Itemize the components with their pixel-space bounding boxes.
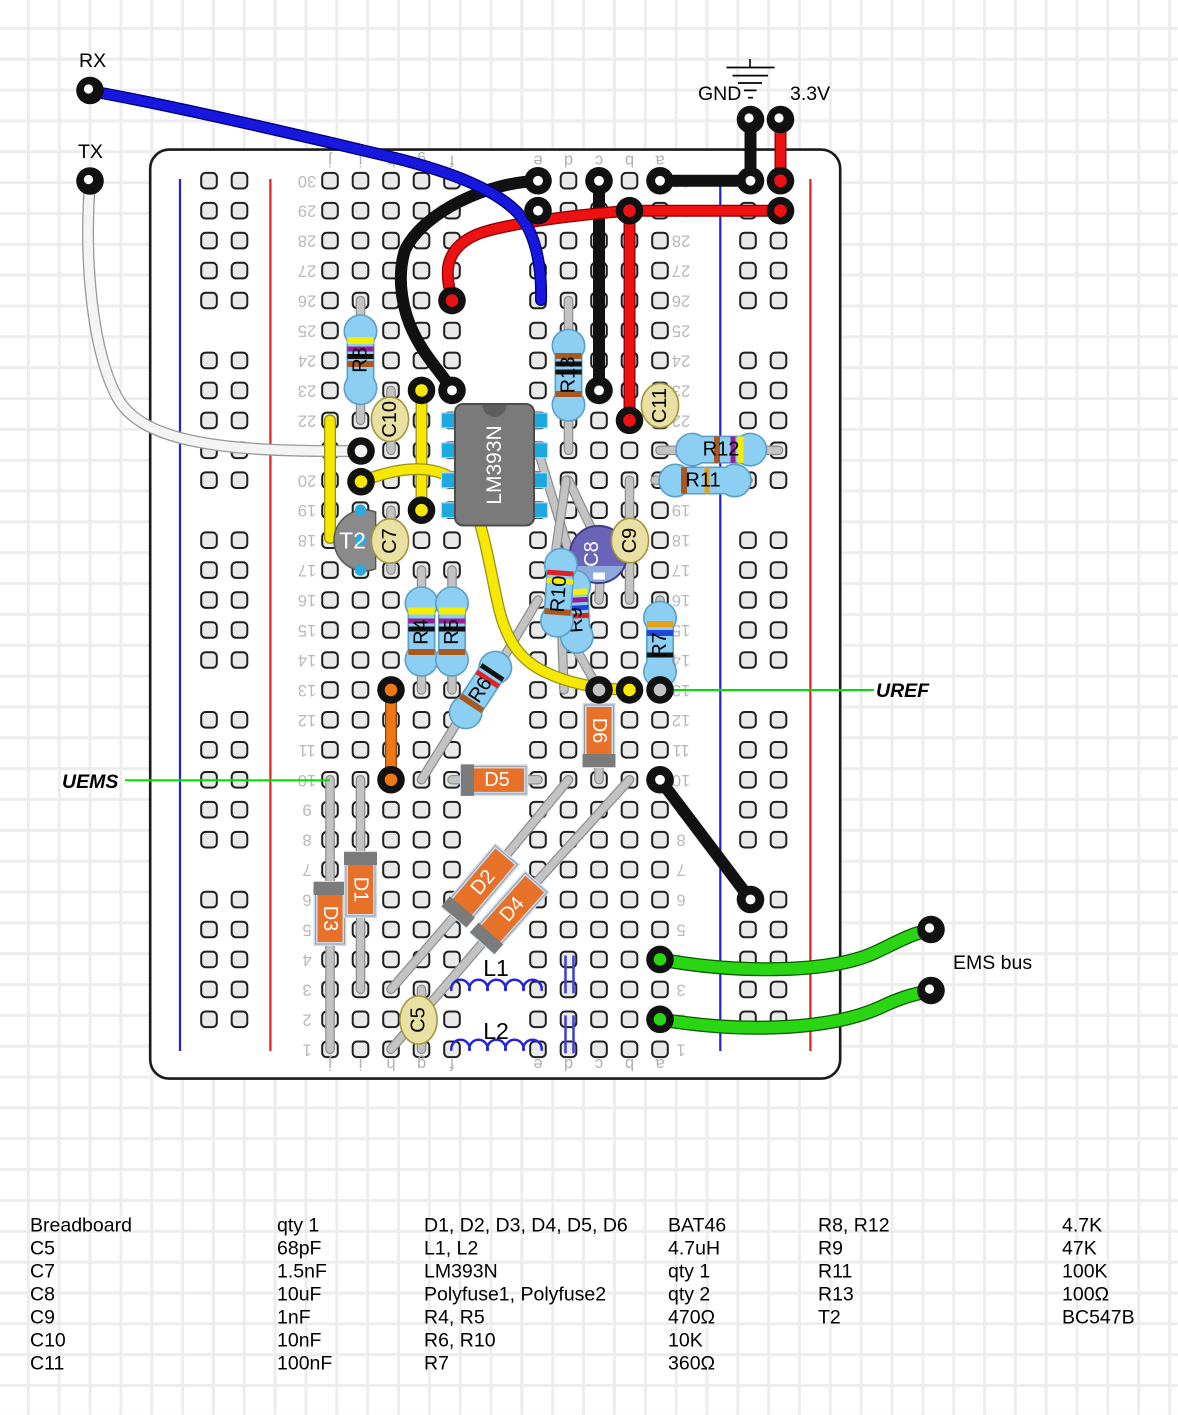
svg-text:LM393N: LM393N — [483, 425, 506, 504]
svg-text:360Ω: 360Ω — [668, 1353, 715, 1375]
svg-text:R12: R12 — [703, 439, 740, 461]
svg-text:D3: D3 — [319, 906, 341, 932]
svg-text:12: 12 — [672, 711, 690, 729]
svg-text:a: a — [655, 1055, 665, 1073]
svg-text:24: 24 — [298, 351, 316, 369]
svg-text:29: 29 — [298, 202, 316, 220]
svg-text:7: 7 — [676, 861, 685, 879]
svg-text:R4, R5: R4, R5 — [424, 1307, 485, 1329]
svg-text:R13: R13 — [818, 1284, 854, 1306]
svg-text:6: 6 — [676, 891, 685, 909]
svg-text:100Ω: 100Ω — [1062, 1284, 1109, 1306]
svg-text:UEMS: UEMS — [62, 771, 118, 793]
svg-text:b: b — [625, 152, 634, 170]
svg-text:C11: C11 — [30, 1353, 64, 1375]
svg-text:16: 16 — [298, 591, 316, 609]
svg-text:L1, L2: L1, L2 — [424, 1238, 478, 1260]
svg-text:28: 28 — [298, 232, 316, 250]
svg-text:R11: R11 — [685, 470, 720, 492]
svg-text:C7: C7 — [30, 1261, 55, 1283]
svg-text:GND: GND — [698, 83, 741, 105]
svg-text:3.3V: 3.3V — [790, 83, 830, 105]
svg-text:3: 3 — [302, 980, 311, 998]
svg-text:e: e — [533, 1055, 542, 1073]
svg-text:C7: C7 — [379, 528, 401, 554]
svg-text:17: 17 — [298, 561, 316, 579]
svg-text:100K: 100K — [1062, 1261, 1108, 1283]
svg-text:1: 1 — [676, 1040, 685, 1058]
svg-text:j: j — [328, 1055, 333, 1073]
svg-text:EMS bus: EMS bus — [953, 952, 1032, 974]
svg-text:C5: C5 — [30, 1238, 55, 1260]
svg-text:26: 26 — [298, 292, 316, 310]
svg-text:13: 13 — [298, 681, 316, 699]
svg-text:f: f — [449, 1055, 454, 1073]
svg-text:25: 25 — [672, 322, 690, 340]
svg-text:12: 12 — [298, 711, 316, 729]
svg-text:19: 19 — [672, 501, 690, 519]
svg-text:LM393N: LM393N — [424, 1261, 498, 1283]
svg-text:C8: C8 — [30, 1284, 55, 1306]
svg-text:BAT46: BAT46 — [668, 1215, 726, 1237]
svg-text:25: 25 — [298, 322, 316, 340]
svg-text:R7: R7 — [649, 632, 671, 658]
svg-text:g: g — [417, 1055, 426, 1073]
svg-text:8: 8 — [302, 831, 311, 849]
svg-text:5: 5 — [302, 921, 311, 939]
svg-text:3: 3 — [676, 980, 685, 998]
svg-text:qty 1: qty 1 — [668, 1261, 710, 1283]
svg-text:26: 26 — [672, 292, 690, 310]
svg-text:C9: C9 — [619, 528, 641, 554]
svg-text:18: 18 — [672, 531, 690, 549]
svg-text:L1: L1 — [483, 955, 509, 981]
svg-text:D1: D1 — [350, 877, 372, 903]
svg-text:68pF: 68pF — [277, 1238, 322, 1260]
svg-text:5: 5 — [676, 921, 685, 939]
svg-text:10K: 10K — [668, 1330, 703, 1352]
svg-text:a: a — [655, 152, 665, 170]
svg-text:2: 2 — [302, 1010, 311, 1028]
svg-text:Breadboard: Breadboard — [30, 1215, 132, 1237]
svg-text:TX: TX — [78, 141, 103, 163]
svg-text:C8: C8 — [581, 541, 603, 567]
svg-text:f: f — [449, 152, 454, 170]
svg-text:18: 18 — [298, 531, 316, 549]
svg-text:8: 8 — [676, 831, 685, 849]
svg-text:6: 6 — [302, 891, 311, 909]
svg-text:d: d — [564, 152, 573, 170]
svg-text:470Ω: 470Ω — [668, 1307, 715, 1329]
svg-text:C10: C10 — [30, 1330, 66, 1352]
svg-text:C5: C5 — [408, 1007, 430, 1033]
svg-text:R9: R9 — [818, 1238, 843, 1260]
svg-text:D6: D6 — [588, 718, 610, 744]
svg-text:qty 2: qty 2 — [668, 1284, 710, 1306]
svg-text:e: e — [533, 152, 542, 170]
svg-text:R8, R12: R8, R12 — [818, 1215, 890, 1237]
svg-text:1.5nF: 1.5nF — [277, 1261, 327, 1283]
svg-text:47K: 47K — [1062, 1238, 1097, 1260]
svg-text:R5: R5 — [441, 619, 463, 645]
svg-text:4.7uH: 4.7uH — [668, 1238, 720, 1260]
svg-text:27: 27 — [298, 262, 316, 280]
svg-text:11: 11 — [672, 741, 689, 759]
svg-text:7: 7 — [302, 861, 311, 879]
svg-text:C11: C11 — [649, 388, 671, 423]
svg-text:R13: R13 — [558, 357, 580, 394]
svg-text:R7: R7 — [424, 1353, 449, 1375]
svg-text:C9: C9 — [30, 1307, 55, 1329]
svg-text:T2: T2 — [818, 1307, 841, 1329]
svg-text:Polyfuse1, Polyfuse2: Polyfuse1, Polyfuse2 — [424, 1284, 606, 1306]
svg-text:R4: R4 — [411, 619, 433, 645]
svg-text:R6, R10: R6, R10 — [424, 1330, 496, 1352]
svg-text:b: b — [625, 1055, 634, 1073]
svg-text:10: 10 — [672, 771, 690, 789]
svg-text:9: 9 — [302, 801, 311, 819]
svg-text:T2: T2 — [339, 528, 366, 554]
svg-text:30: 30 — [298, 172, 316, 190]
svg-text:1nF: 1nF — [277, 1307, 311, 1329]
svg-text:28: 28 — [672, 232, 690, 250]
svg-text:R10: R10 — [547, 575, 572, 613]
svg-text:10uF: 10uF — [277, 1284, 322, 1306]
svg-text:27: 27 — [672, 262, 690, 280]
svg-text:h: h — [386, 1055, 395, 1073]
svg-text:24: 24 — [672, 351, 690, 369]
svg-text:14: 14 — [298, 651, 316, 669]
svg-text:i: i — [359, 1055, 363, 1073]
svg-text:d: d — [564, 1055, 573, 1073]
svg-text:16: 16 — [672, 591, 690, 609]
svg-text:j: j — [328, 152, 333, 170]
svg-text:c: c — [595, 152, 603, 170]
svg-text:4: 4 — [302, 950, 311, 968]
svg-text:UREF: UREF — [876, 680, 930, 702]
svg-text:19: 19 — [298, 501, 316, 519]
svg-text:D5: D5 — [484, 769, 510, 791]
svg-text:100nF: 100nF — [277, 1353, 332, 1375]
svg-text:C10: C10 — [379, 401, 401, 438]
svg-text:20: 20 — [298, 471, 316, 489]
svg-text:D1, D2, D3, D4, D5, D6: D1, D2, D3, D4, D5, D6 — [424, 1215, 628, 1237]
svg-text:15: 15 — [298, 621, 316, 639]
svg-text:10nF: 10nF — [277, 1330, 322, 1352]
svg-text:23: 23 — [298, 381, 316, 399]
svg-text:RX: RX — [79, 50, 106, 72]
svg-text:qty 1: qty 1 — [277, 1215, 319, 1237]
svg-text:4.7K: 4.7K — [1062, 1215, 1102, 1237]
svg-text:1: 1 — [302, 1040, 311, 1058]
svg-text:c: c — [595, 1055, 603, 1073]
svg-text:22: 22 — [298, 411, 316, 429]
svg-text:17: 17 — [672, 561, 690, 579]
svg-text:BC547B: BC547B — [1062, 1307, 1135, 1329]
svg-text:L2: L2 — [483, 1018, 509, 1044]
svg-text:R11: R11 — [818, 1261, 852, 1283]
svg-text:11: 11 — [298, 741, 315, 759]
svg-text:R8: R8 — [350, 347, 372, 373]
